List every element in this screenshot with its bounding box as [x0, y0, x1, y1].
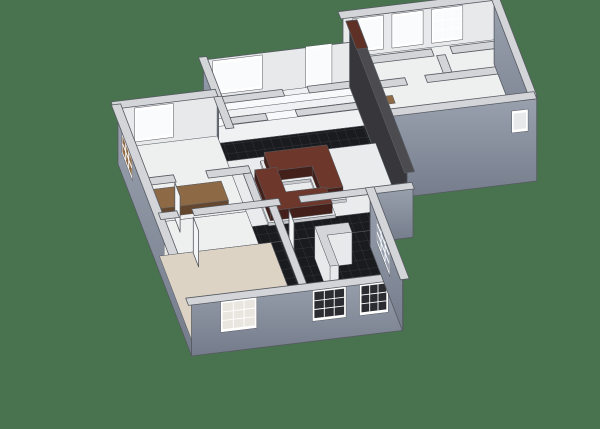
unitB-south-notch	[512, 109, 528, 133]
unitB-window-2	[392, 10, 423, 48]
south-window-3	[360, 280, 389, 316]
south-window-1	[221, 296, 257, 332]
floorplan-svg	[0, 0, 600, 429]
unitB-window-3	[432, 6, 463, 44]
floorplan-canvas	[0, 0, 600, 429]
south-window-2	[312, 285, 346, 321]
bedroom1-door	[306, 44, 332, 89]
kitchen-window	[135, 103, 174, 142]
bedroom1-window	[213, 55, 263, 95]
